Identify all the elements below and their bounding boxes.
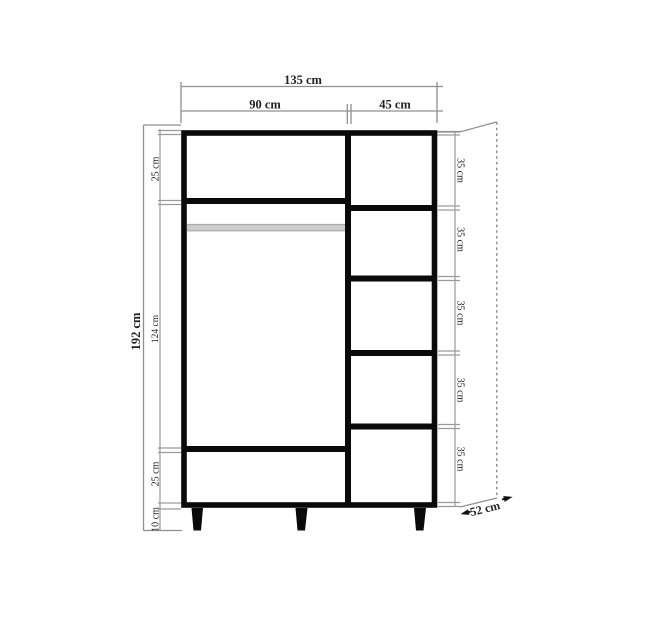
svg-text:90 cm: 90 cm: [249, 98, 281, 112]
svg-text:45 cm: 45 cm: [379, 98, 411, 112]
svg-text:192 cm: 192 cm: [129, 312, 143, 350]
svg-text:35 cm: 35 cm: [455, 447, 466, 472]
svg-text:35 cm: 35 cm: [455, 301, 466, 326]
svg-text:35 cm: 35 cm: [455, 227, 466, 252]
svg-text:25 cm: 25 cm: [151, 461, 162, 486]
svg-text:35 cm: 35 cm: [455, 378, 466, 403]
svg-text:25 cm: 25 cm: [151, 156, 162, 181]
svg-text:124 cm: 124 cm: [151, 314, 161, 343]
svg-text:10 cm: 10 cm: [151, 507, 162, 532]
svg-text:35 cm: 35 cm: [455, 158, 466, 183]
svg-text:135 cm: 135 cm: [284, 73, 322, 87]
